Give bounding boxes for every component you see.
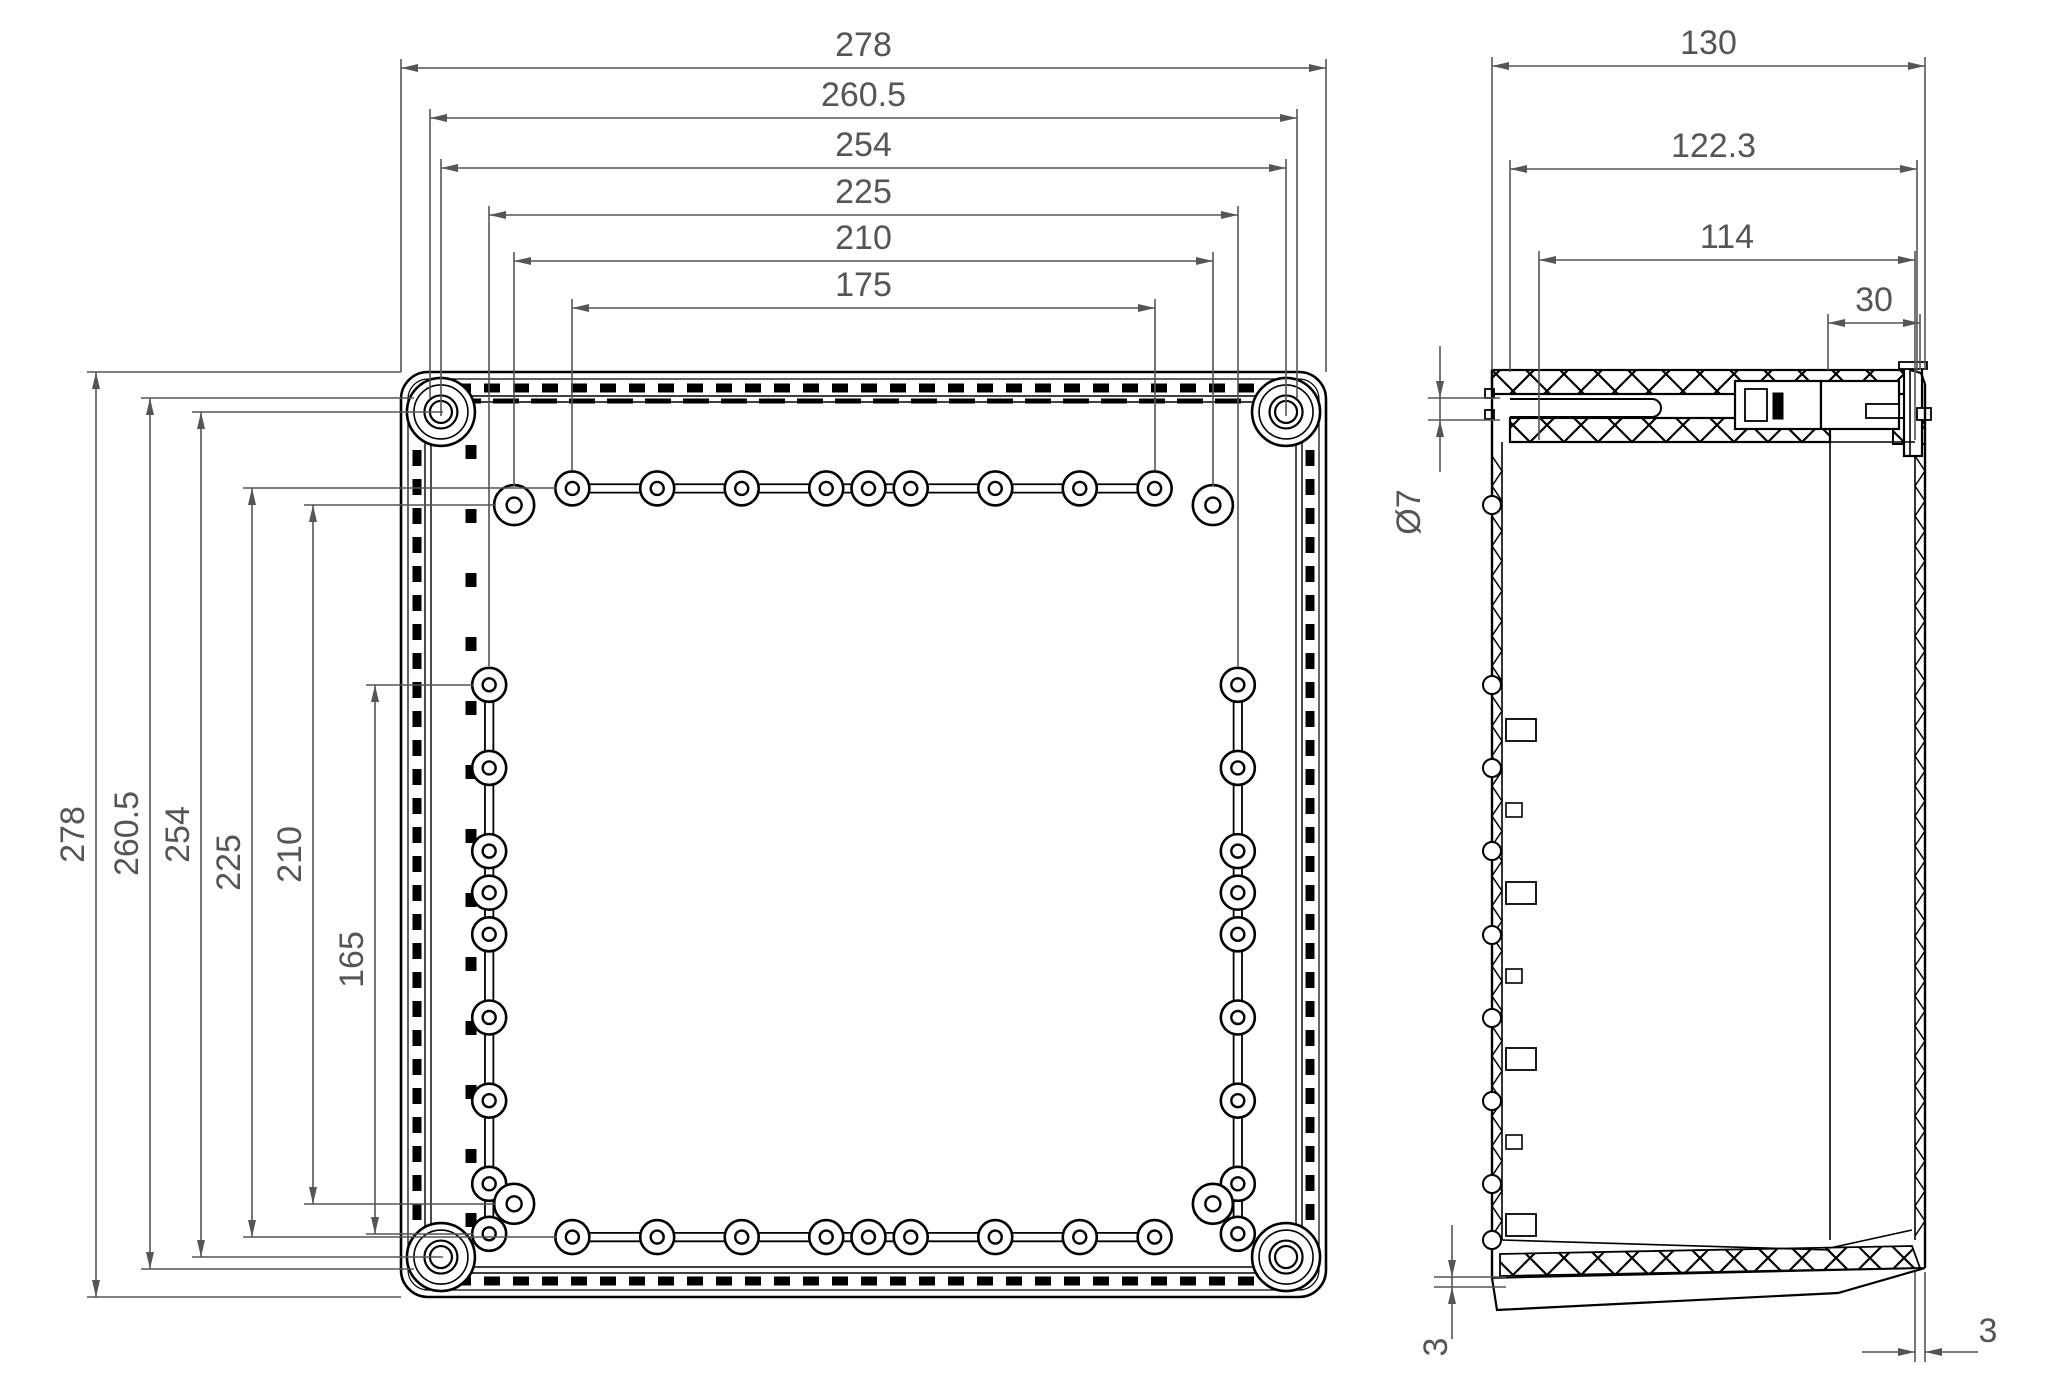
dim-label-130: 130	[1680, 24, 1737, 62]
front-view-enclosure-face	[401, 372, 1326, 1297]
dim-label-260.5: 260.5	[821, 76, 906, 114]
dim-label-210: 210	[271, 826, 309, 883]
dim-label-260.5: 260.5	[108, 791, 146, 876]
dim-label-wall-thickness: 3	[1979, 1312, 1998, 1350]
dim-label-175: 175	[835, 266, 892, 304]
dim-label-30: 30	[1855, 281, 1893, 319]
side-view-enclosure-section	[1483, 362, 1931, 1310]
dimension-annotations: 278260.5254225210175278260.5254225210165…	[54, 24, 1997, 1362]
dim-label-bottom-thickness: 3	[1417, 1338, 1455, 1357]
dim-label-278: 278	[835, 26, 892, 64]
technical-drawing-canvas: 278260.5254225210175278260.5254225210165…	[0, 0, 2063, 1376]
dim-label-254: 254	[159, 806, 197, 863]
dim-label-210: 210	[835, 219, 892, 257]
drawing-page: 278260.5254225210175278260.5254225210165…	[0, 0, 2063, 1376]
dim-label-225: 225	[210, 834, 248, 891]
dim-label-225: 225	[835, 173, 892, 211]
dim-label-hole-diameter: Ø7	[1390, 489, 1428, 534]
dim-label-122.3: 122.3	[1671, 127, 1756, 165]
dim-label-114: 114	[1700, 218, 1754, 256]
dim-label-165: 165	[333, 931, 371, 988]
dim-label-254: 254	[835, 126, 892, 164]
dim-label-278: 278	[54, 806, 92, 863]
